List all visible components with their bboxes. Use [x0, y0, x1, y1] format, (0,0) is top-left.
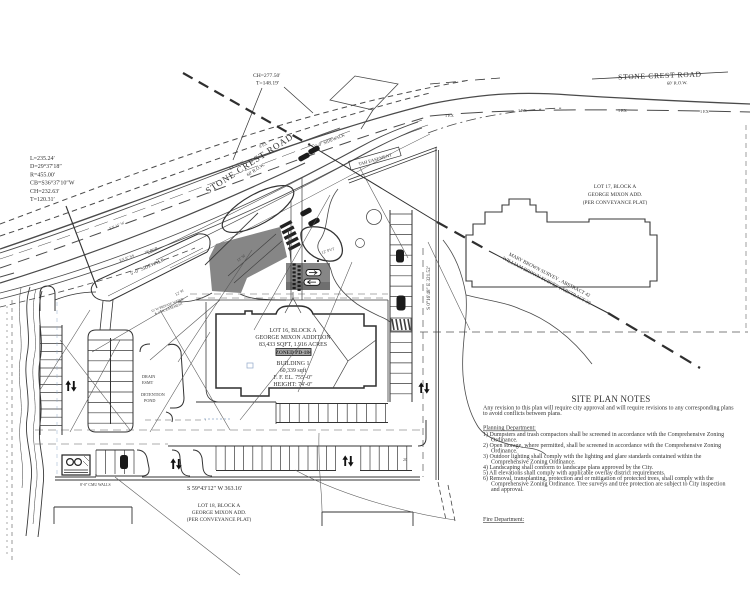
- svg-text:(PER CONVEYANCE PLAT): (PER CONVEYANCE PLAT): [583, 199, 648, 206]
- svg-text:1 EX: 1 EX: [518, 108, 527, 113]
- svg-text:L=235.24′: L=235.24′: [30, 156, 56, 162]
- svg-text:8′-0″ CMU WALLS: 8′-0″ CMU WALLS: [80, 483, 111, 487]
- svg-text:(PER CONVEYANCE PLAT): (PER CONVEYANCE PLAT): [187, 516, 252, 523]
- svg-text:5′-0″ SIDEWALK: 5′-0″ SIDEWALK: [130, 258, 166, 277]
- svg-text:POND: POND: [144, 398, 155, 403]
- svg-text:T=120.31′: T=120.31′: [30, 197, 56, 203]
- svg-text:SITE PLAN NOTES: SITE PLAN NOTES: [572, 394, 651, 404]
- svg-text:HEIGHT: 74′-0″: HEIGHT: 74′-0″: [273, 382, 313, 388]
- svg-text:CH=277.50′: CH=277.50′: [253, 73, 281, 79]
- svg-text:LOT 18, BLOCK A: LOT 18, BLOCK A: [198, 503, 240, 509]
- svg-text:LOT 16, BLOCK A: LOT 16, BLOCK A: [269, 328, 317, 334]
- svg-text:T=148.19′: T=148.19′: [256, 81, 279, 87]
- svg-text:ESMT: ESMT: [142, 380, 154, 385]
- svg-text:GEORGE MIXON ADD.: GEORGE MIXON ADD.: [588, 192, 643, 198]
- svg-text:2) Open storage, where permitt: 2) Open storage, where permitted, shall …: [483, 442, 721, 449]
- svg-text:12′ W: 12′ W: [174, 288, 185, 297]
- svg-text:1 EX: 1 EX: [618, 108, 627, 113]
- svg-text:S 59°43′12″ W 363.16′: S 59°43′12″ W 363.16′: [187, 485, 243, 492]
- svg-text:GEORGE MIXON ADD.: GEORGE MIXON ADD.: [192, 510, 247, 516]
- svg-text:1 EX: 1 EX: [445, 113, 454, 118]
- svg-text:WILLIAM BROWN SURVEY , ABSTRAC: WILLIAM BROWN SURVEY , ABSTRACT 38: [501, 257, 591, 307]
- svg-text:DRAIN: DRAIN: [142, 374, 155, 379]
- svg-text:GEORGE MIXON ADDITION: GEORGE MIXON ADDITION: [255, 335, 331, 341]
- svg-text:DETENTION: DETENTION: [141, 392, 165, 397]
- svg-text:S 0°16′48″ E 321.52′: S 0°16′48″ E 321.52′: [425, 266, 432, 310]
- svg-text:LOT 17, BLOCK A: LOT 17, BLOCK A: [594, 184, 636, 190]
- svg-text:5′-0″ SIDEWALK: 5′-0″ SIDEWALK: [314, 132, 346, 149]
- svg-text:BUILDING 1: BUILDING 1: [277, 361, 310, 367]
- svg-text:D=29°37′18″: D=29°37′18″: [30, 163, 62, 170]
- svg-text:12′ PVT: 12′ PVT: [321, 246, 336, 255]
- svg-text:1) Dumpsters and trash compact: 1) Dumpsters and trash compactors shall …: [483, 431, 724, 438]
- svg-text:EX 8″ SS: EX 8″ SS: [119, 253, 135, 263]
- svg-text:CB=S36°37′10″W: CB=S36°37′10″W: [30, 180, 75, 187]
- svg-text:and approval.: and approval.: [491, 487, 524, 493]
- svg-text:R=455.00′: R=455.00′: [30, 172, 56, 178]
- svg-text:Planning Department:: Planning Department:: [483, 426, 536, 432]
- svg-text:F. F. EL. 755′-0″: F. F. EL. 755′-0″: [273, 375, 313, 381]
- svg-text:EX 15′ W: EX 15′ W: [108, 220, 125, 231]
- svg-text:60′ R.O.W.: 60′ R.O.W.: [667, 80, 688, 86]
- svg-text:Comprehensive Zoning Ordinance: Comprehensive Zoning Ordinance. Tree sur…: [491, 482, 725, 488]
- svg-text:Fire Department:: Fire Department:: [483, 517, 524, 523]
- svg-text:20: 20: [403, 457, 407, 462]
- svg-text:CH=232.63′: CH=232.63′: [30, 189, 60, 195]
- svg-text:60,339 sqft: 60,339 sqft: [280, 367, 307, 374]
- svg-text:to avoid conflicts between pla: to avoid conflicts between plans.: [483, 410, 562, 417]
- svg-text:MARY BROWN SURVEY , ABSTRACT 4: MARY BROWN SURVEY , ABSTRACT 42: [508, 253, 591, 300]
- svg-text:1 EX: 1 EX: [700, 109, 709, 114]
